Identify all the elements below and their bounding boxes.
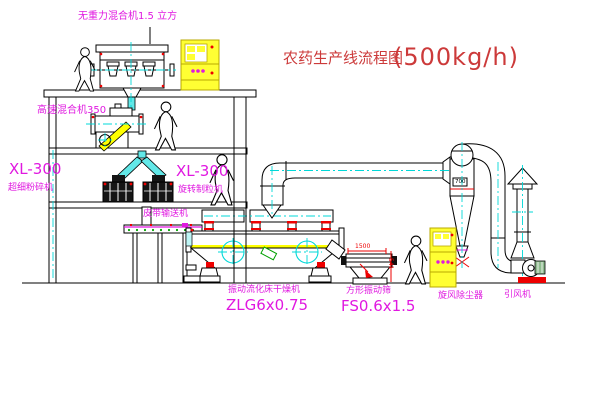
label-screen-model: FS0.6x1.5 [341,299,415,314]
label-dryer-model: ZLG6x0.75 [226,298,308,313]
flow-diagram: 无重力混合机1.5 立方 农药生产线流程图 (500kg/h) 高速混合机350… [0,0,600,403]
label-granulator-name: 旋转制粒机 [178,186,223,195]
label-top-mixer: 无重力混合机1.5 立方 [78,12,177,22]
title-capacity: (500kg/h) [393,45,519,69]
label-fan: 引风机 [504,291,531,300]
title-chinese: 农药生产线流程图 [283,51,403,66]
label-mill-model: XL-300 [9,162,61,177]
label-granulator-model: XL-300 [176,164,228,179]
cyclone-size-tag: 700 [455,180,466,186]
exhaust-duct [260,157,452,218]
person-4 [404,236,427,284]
label-dryer-name: 振动流化床干燥机 [228,286,300,295]
label-mill-name: 超细粉碎机 [8,184,53,193]
label-cyclone: 旋风除尘器 [438,292,483,301]
fluid-bed-dryer [182,210,345,282]
induced-draft-fan [511,260,546,284]
dimension-screen-height: 541 [387,258,393,269]
granulator-right [143,175,173,202]
control-cabinet-2 [430,228,456,287]
person-2 [154,102,177,150]
label-high-speed-mixer: 高速混合机350 [37,106,106,116]
control-cabinet-1 [181,40,219,90]
granulator-left [103,175,133,202]
label-belt-conveyor: 皮带输送机 [143,210,188,219]
dimension-screen-length: 1500 [355,244,370,250]
label-screen-name: 方形振动筛 [346,287,391,296]
